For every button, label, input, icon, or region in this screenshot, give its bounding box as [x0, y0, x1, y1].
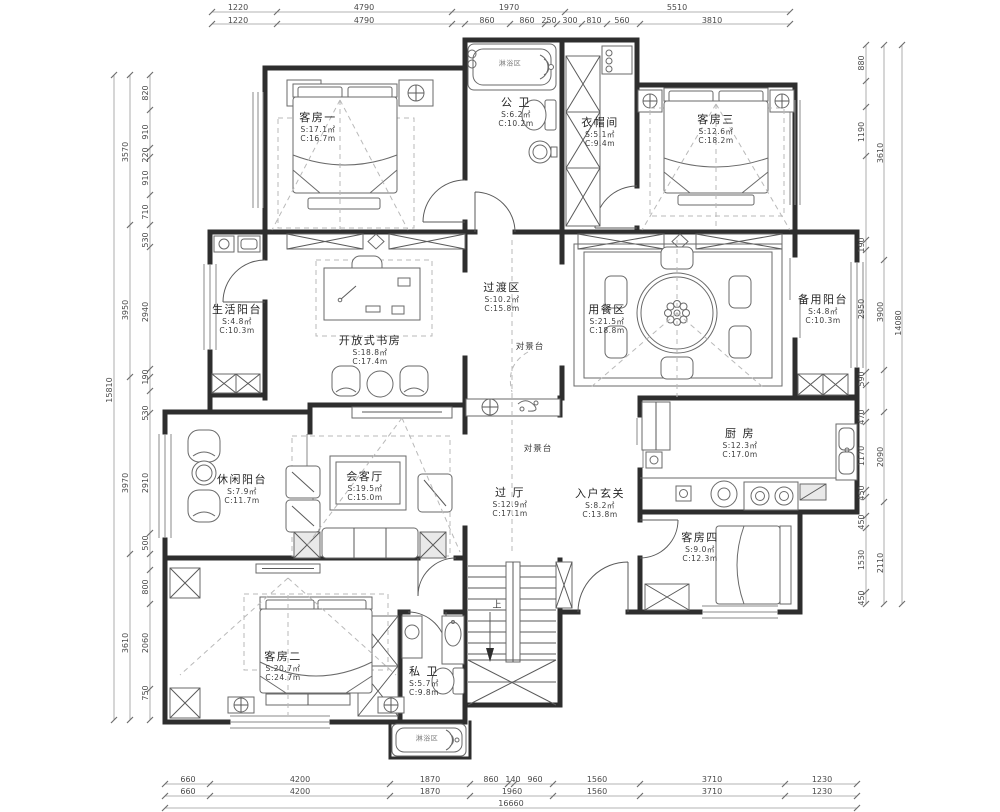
foyer-console	[466, 352, 560, 416]
dim-label: 2090	[877, 447, 885, 467]
room-name: 衣帽间	[581, 116, 619, 130]
dim-label: 4200	[290, 788, 310, 796]
room-name: 会客厅	[346, 470, 384, 484]
dim-label: 530	[142, 405, 150, 420]
room-label-cloakroom: 衣帽间 S:5.1㎡ C:9.4m	[581, 116, 619, 149]
dim-label: 1220	[228, 4, 248, 12]
furniture-guestroom3	[650, 88, 784, 216]
room-perimeter: C:15.0m	[346, 493, 384, 502]
dim-label: 1230	[812, 776, 832, 784]
room-area: S:9.0㎡	[681, 545, 719, 554]
room-label-service-balcony: 生活阳台 S:4.8㎡ C:10.3m	[212, 303, 262, 336]
dim-label: 820	[142, 85, 150, 100]
study-top-cabinet	[287, 234, 465, 249]
dim-label: 3570	[122, 142, 130, 162]
room-area: S:12.6㎡	[697, 127, 735, 136]
dim-label: 3610	[877, 143, 885, 163]
room-area: S:18.8㎡	[339, 348, 402, 357]
dim-label: 910	[142, 124, 150, 139]
room-perimeter: C:18.8m	[588, 326, 626, 335]
room-area: S:5.7㎡	[409, 679, 439, 688]
room-perimeter: C:17.0m	[722, 450, 757, 459]
room-label-living-room: 会客厅 S:19.5㎡ C:15.0m	[346, 470, 384, 503]
dim-label-total-height-left: 15810	[106, 377, 114, 402]
room-perimeter: C:18.2m	[697, 136, 735, 145]
annotation-shower-zone: 淋浴区	[416, 736, 439, 743]
dim-label: 530	[142, 232, 150, 247]
dim-label-total-width: 16660	[498, 800, 523, 808]
dim-label: 3710	[702, 776, 722, 784]
dim-label: 2950	[858, 299, 866, 319]
room-name: 客房三	[697, 113, 735, 127]
room-name: 客房四	[681, 531, 719, 545]
dim-label: 860	[479, 17, 494, 25]
room-name: 过 厅	[492, 486, 527, 500]
dim-label: 1870	[420, 776, 440, 784]
room-name: 休闲阳台	[217, 473, 267, 487]
dim-label: 250	[541, 17, 556, 25]
dim-label: 1960	[502, 788, 522, 796]
stairs	[468, 562, 556, 705]
furniture-guestroom4	[716, 526, 791, 604]
room-perimeter: C:13.8m	[575, 510, 625, 519]
dim-label: 810	[586, 17, 601, 25]
dim-label: 300	[562, 17, 577, 25]
dim-label: 470	[858, 409, 866, 424]
room-label-private-bath: 私 卫 S:5.7㎡ C:9.8m	[409, 665, 439, 698]
dim-label: 450	[858, 514, 866, 529]
guestroom4-cabinet	[645, 584, 689, 610]
dim-label: 140	[505, 776, 520, 784]
dim-label: 3610	[122, 633, 130, 653]
room-label-dining-area: 用餐区 S:21.5㎡ C:18.8m	[588, 303, 626, 336]
stair-side-cabinet	[556, 562, 572, 608]
room-label-guestroom-1: 客房一 S:17.1㎡ C:16.7m	[299, 111, 337, 144]
room-name: 开放式书房	[339, 334, 402, 348]
dim-label: 1190	[858, 122, 866, 142]
room-label-guestroom-4: 客房四 S:9.0㎡ C:12.3m	[681, 531, 719, 564]
dim-label: 1970	[499, 4, 519, 12]
room-perimeter: C:24.7m	[264, 673, 302, 682]
room-area: S:12.9㎡	[492, 500, 527, 509]
room-name: 入户玄关	[575, 487, 625, 501]
room-name: 生活阳台	[212, 303, 262, 317]
dim-label: 860	[519, 17, 534, 25]
room-name: 客房一	[299, 111, 337, 125]
room-name: 备用阳台	[798, 293, 848, 307]
annotation-view-stand: 对景台	[524, 445, 553, 454]
dim-label: 4200	[290, 776, 310, 784]
dim-label: 2940	[142, 302, 150, 322]
dim-label: 2060	[142, 633, 150, 653]
dim-label-total-height-right: 14080	[895, 310, 903, 335]
room-area: S:17.1㎡	[299, 125, 337, 134]
room-area: S:8.2㎡	[575, 501, 625, 510]
dim-label: 1530	[858, 550, 866, 570]
floor-plan-canvas: 客房一 S:17.1㎡ C:16.7m 公 卫 S:6.2㎡ C:10.2m 衣…	[0, 0, 1000, 812]
dim-label: 450	[858, 485, 866, 500]
dim-label: 710	[142, 204, 150, 219]
room-perimeter: C:9.4m	[581, 139, 619, 148]
dim-label: 560	[614, 17, 629, 25]
dim-label: 190	[142, 369, 150, 384]
room-area: S:12.3㎡	[722, 441, 757, 450]
dim-label: 1220	[228, 17, 248, 25]
room-area: S:20.7㎡	[264, 664, 302, 673]
room-label-leisure-balcony: 休闲阳台 S:7.9㎡ C:11.7m	[217, 473, 267, 506]
dim-label: 3950	[122, 300, 130, 320]
room-label-public-bath: 公 卫 S:6.2㎡ C:10.2m	[498, 96, 533, 129]
furniture-leisure-balcony	[188, 430, 220, 522]
room-area: S:6.2㎡	[498, 110, 533, 119]
room-perimeter: C:10.3m	[798, 316, 848, 325]
room-name: 用餐区	[588, 303, 626, 317]
dim-label: 880	[858, 55, 866, 70]
dim-label: 4790	[354, 17, 374, 25]
room-area: S:19.5㎡	[346, 484, 384, 493]
dim-label: 500	[142, 535, 150, 550]
dim-label: 1560	[587, 776, 607, 784]
dim-label: 2910	[142, 473, 150, 493]
balcony-cabinets	[212, 374, 848, 395]
dim-label: 450	[858, 590, 866, 605]
room-perimeter: C:9.8m	[409, 688, 439, 697]
dim-label: 3810	[702, 17, 722, 25]
room-area: S:7.9㎡	[217, 487, 267, 496]
room-perimeter: C:17.1m	[492, 509, 527, 518]
dim-label: 660	[180, 788, 195, 796]
dim-label: 4790	[354, 4, 374, 12]
room-name: 私 卫	[409, 665, 439, 679]
dim-label: 1870	[420, 788, 440, 796]
room-area: S:5.1㎡	[581, 130, 619, 139]
room-perimeter: C:16.7m	[299, 134, 337, 143]
room-label-kitchen: 厨 房 S:12.3㎡ C:17.0m	[722, 427, 757, 460]
room-name: 客房二	[264, 650, 302, 664]
dim-label: 3900	[877, 302, 885, 322]
room-name: 公 卫	[498, 96, 533, 110]
annotation-stair-up: 上	[492, 602, 501, 611]
dim-label: 800	[142, 579, 150, 594]
annotation-shower-zone: 淋浴区	[499, 61, 522, 68]
room-name: 过渡区	[483, 281, 521, 295]
room-label-hall: 过 厅 S:12.9㎡ C:17.1m	[492, 486, 527, 519]
annotation-view-stand: 对景台	[516, 343, 545, 352]
dim-label: 1230	[812, 788, 832, 796]
dim-label: 3710	[702, 788, 722, 796]
room-label-open-study: 开放式书房 S:18.8㎡ C:17.4m	[339, 334, 402, 367]
furniture-guestroom1	[278, 84, 414, 228]
furniture-study	[316, 256, 432, 397]
room-area: S:4.8㎡	[212, 317, 262, 326]
service-balcony-fixtures	[214, 236, 260, 252]
dim-label: 2110	[877, 553, 885, 573]
room-name: 厨 房	[722, 427, 757, 441]
dim-label: 3970	[122, 473, 130, 493]
room-label-guestroom-3: 客房三 S:12.6㎡ C:18.2m	[697, 113, 735, 146]
room-label-entry-foyer: 入户玄关 S:8.2㎡ C:13.8m	[575, 487, 625, 520]
dim-label: 1560	[587, 788, 607, 796]
dim-label: 910	[142, 170, 150, 185]
dim-label: 590	[858, 371, 866, 386]
room-perimeter: C:11.7m	[217, 496, 267, 505]
room-perimeter: C:10.3m	[212, 326, 262, 335]
room-perimeter: C:17.4m	[339, 357, 402, 366]
room-perimeter: C:15.8m	[483, 304, 521, 313]
dim-label: 860	[483, 776, 498, 784]
dim-label: 190	[858, 237, 866, 252]
room-area: S:4.8㎡	[798, 307, 848, 316]
room-area: S:21.5㎡	[588, 317, 626, 326]
dim-label: 660	[180, 776, 195, 784]
dim-label: 1170	[858, 446, 866, 466]
room-label-guestroom-2: 客房二 S:20.7㎡ C:24.7m	[264, 650, 302, 683]
dim-label: 960	[527, 776, 542, 784]
room-perimeter: C:12.3m	[681, 554, 719, 563]
dim-label: 220	[142, 147, 150, 162]
room-label-transition-zone: 过渡区 S:10.2㎡ C:15.8m	[483, 281, 521, 314]
dim-label: 5510	[667, 4, 687, 12]
room-area: S:10.2㎡	[483, 295, 521, 304]
room-label-spare-balcony: 备用阳台 S:4.8㎡ C:10.3m	[798, 293, 848, 326]
room-perimeter: C:10.2m	[498, 119, 533, 128]
dim-label: 750	[142, 685, 150, 700]
